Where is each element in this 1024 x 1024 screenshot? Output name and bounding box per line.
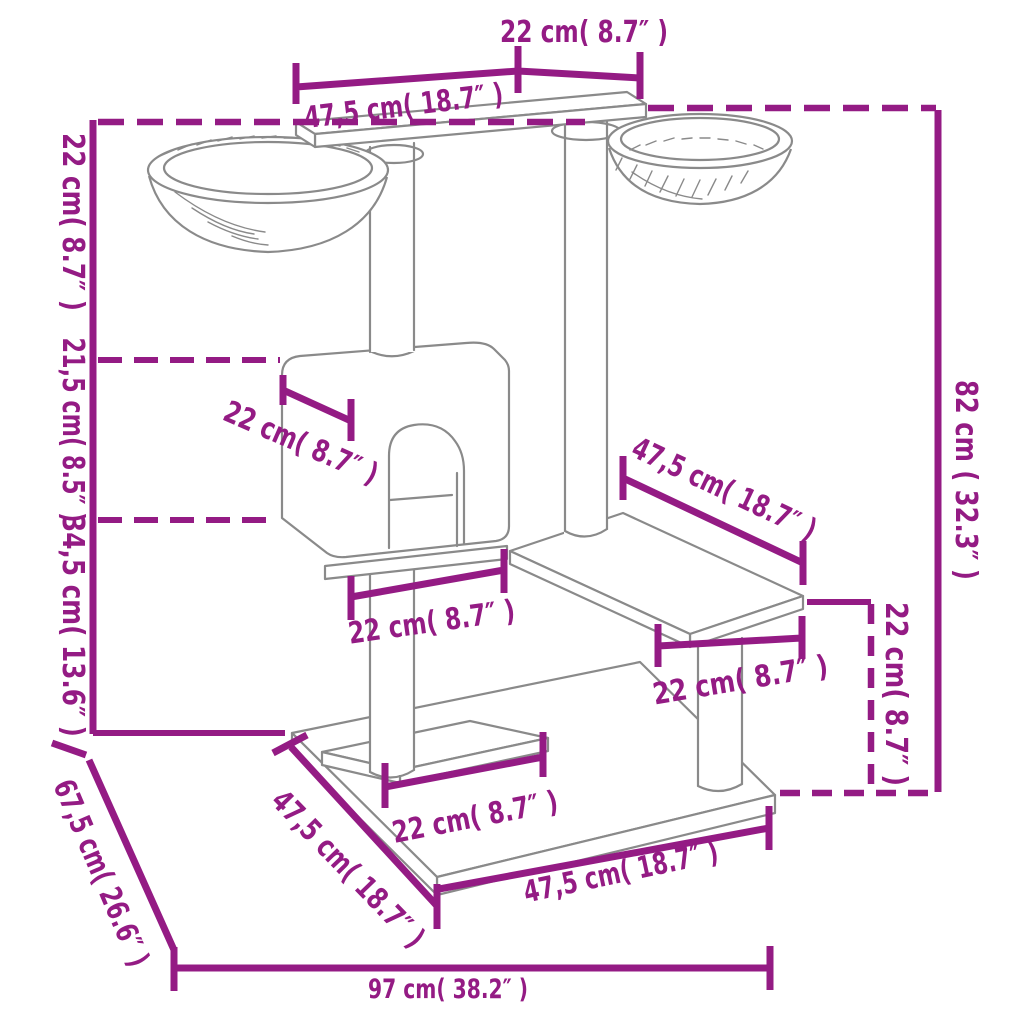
cat-tree-dimension-diagram: 22 cm( 8.7″ ) 47,5 cm( 18.7″ ) 22 cm( 8.… [0,0,1024,1024]
dim-label-total-height: 82 cm ( 32.3″ ) [948,380,983,580]
dim-label-total-width: 97 cm( 38.2″ ) [368,974,528,1005]
dim-label-left-upper-height: 22 cm( 8.7″ ) [55,133,90,311]
dim-label-right-step-height: 22 cm( 8.7″ ) [878,602,913,786]
dim-label-top-platform-depth: 22 cm( 8.7″ ) [500,15,668,50]
left-hanging-bowl [148,136,388,252]
dim-line-right-step-height [807,602,871,790]
central-post [564,117,608,537]
dim-label-left-lower-height: 34,5 cm( 13.6″ ) [55,515,90,737]
lower-right-post [697,638,743,791]
dim-label-left-house-height: 21,5 cm( 8.5″ ) [55,338,90,523]
right-hanging-bowl [608,114,792,204]
dimension-diagram-page: 22 cm( 8.7″ ) 47,5 cm( 18.7″ ) 22 cm( 8.… [0,0,1024,1024]
lower-middle-post [369,568,415,778]
dim-line-top-platform-depth [518,46,640,99]
